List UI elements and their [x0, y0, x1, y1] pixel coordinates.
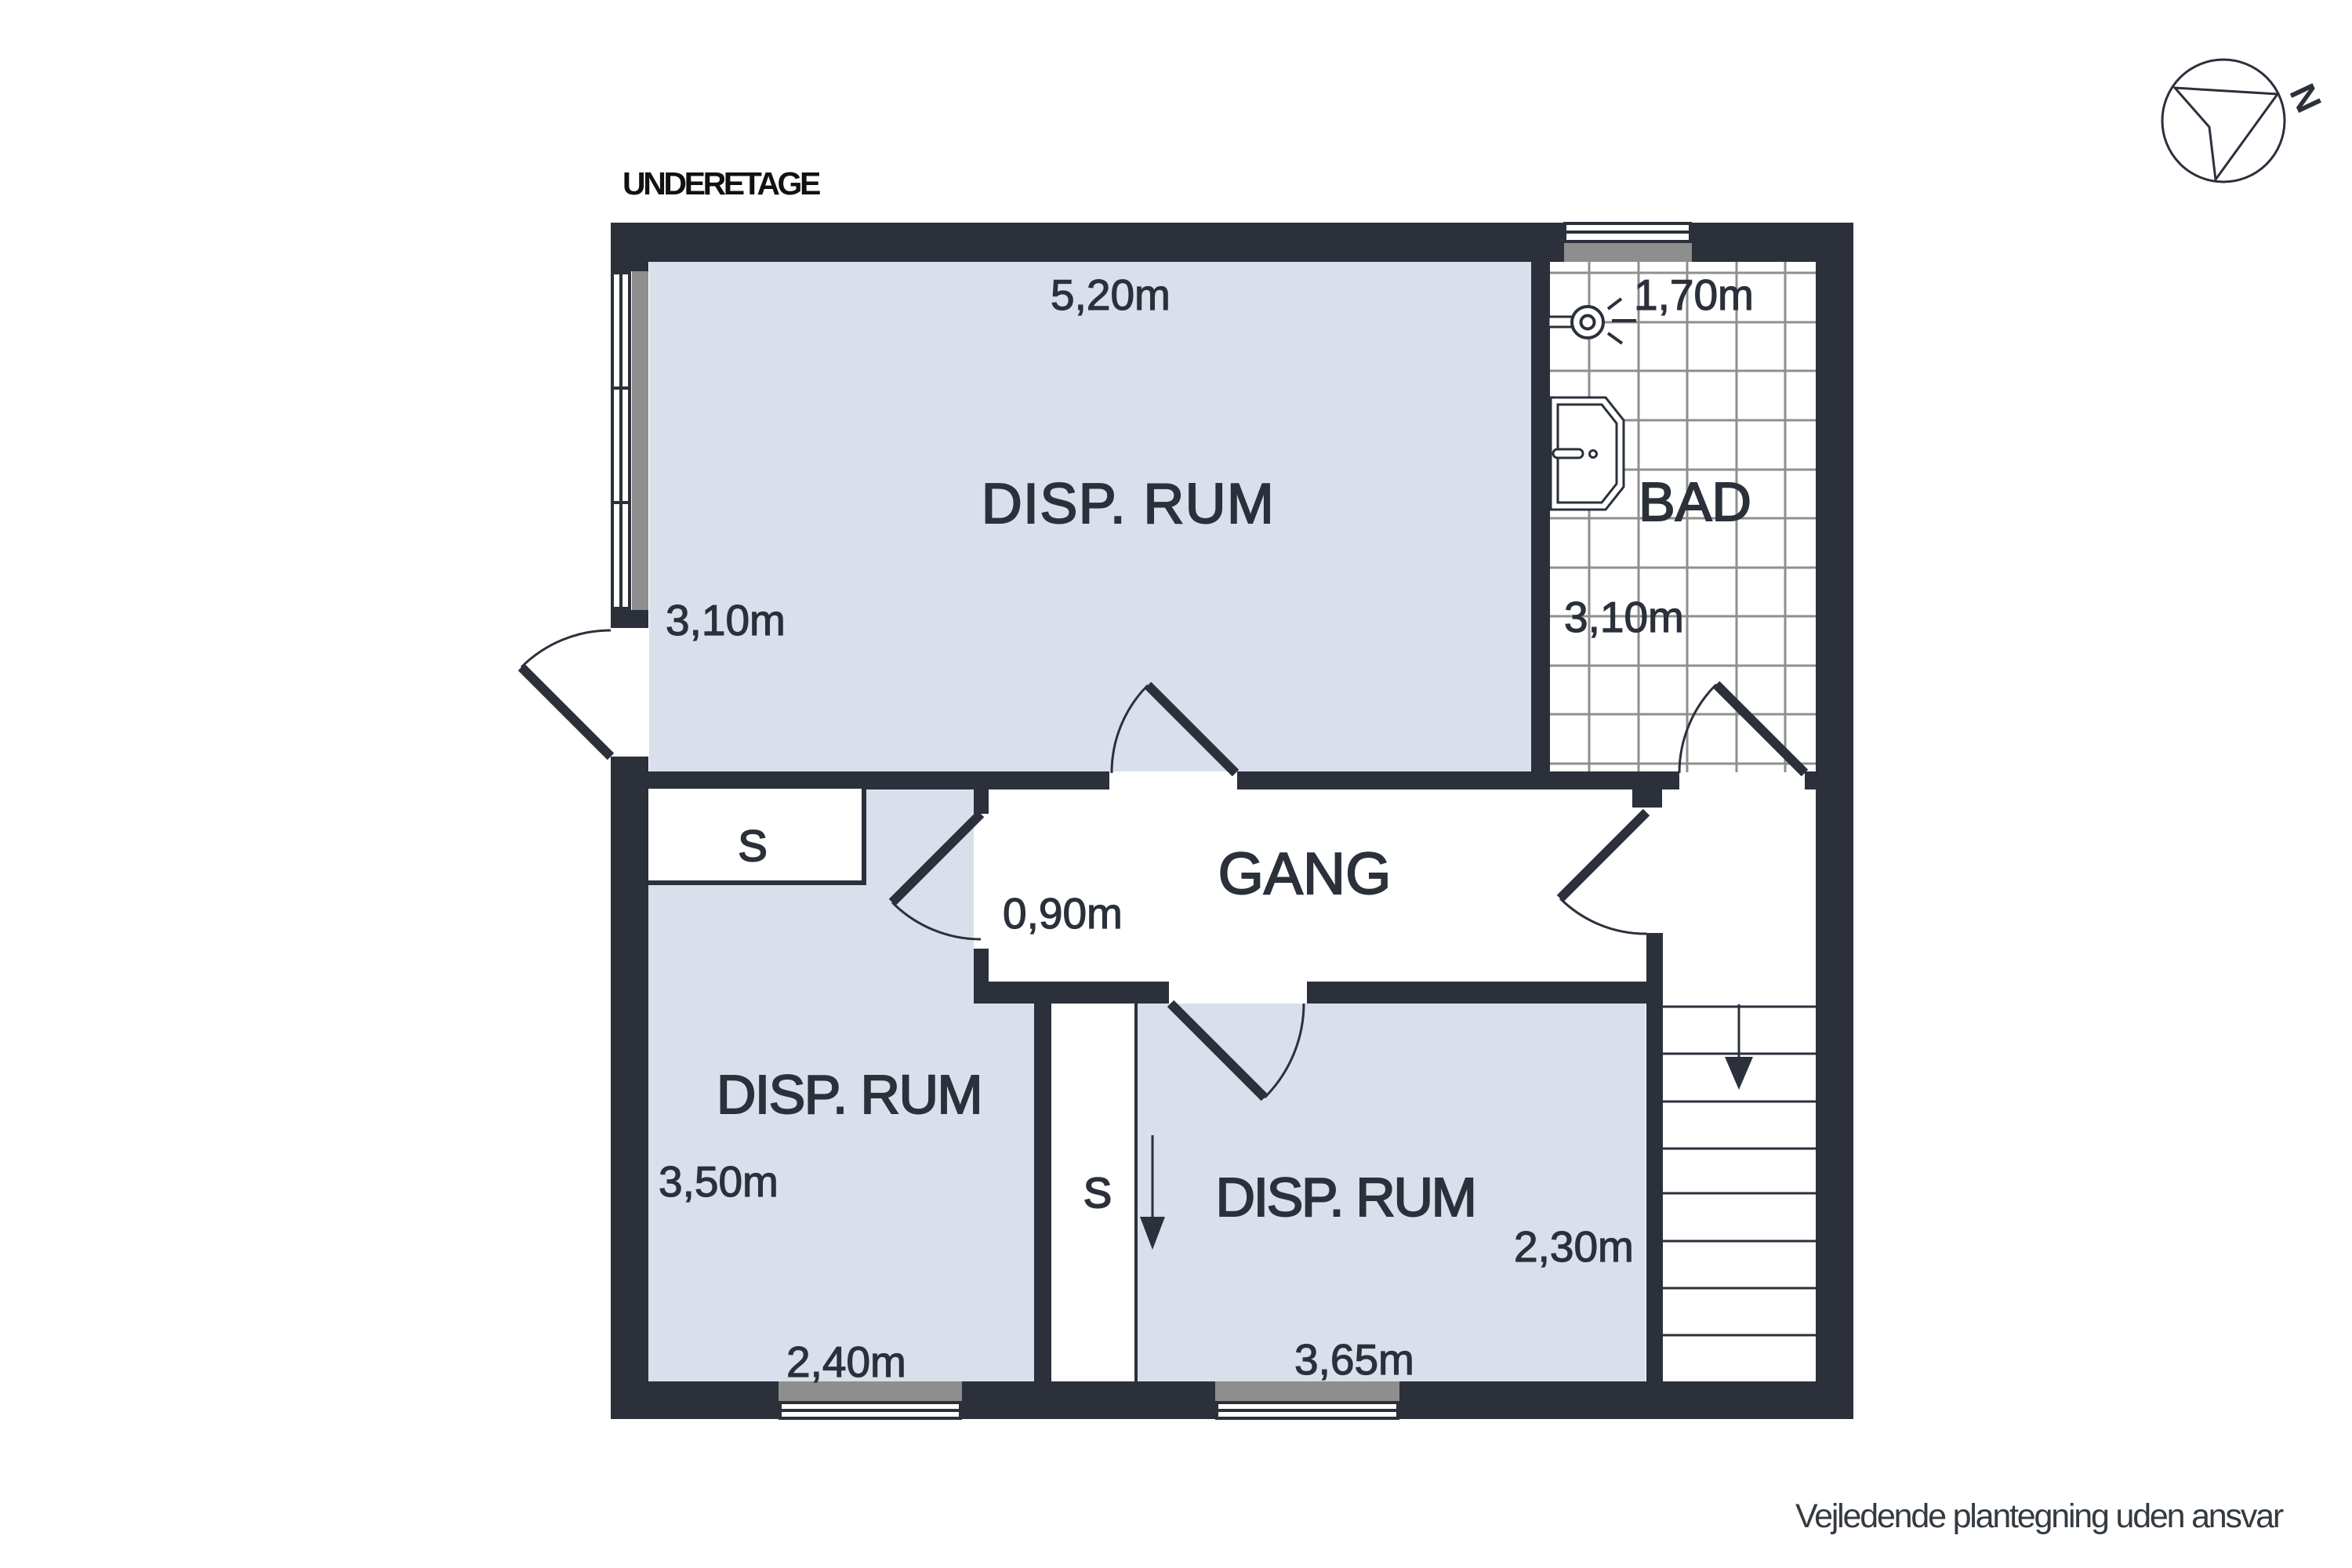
svg-text:DISP. RUM: DISP. RUM [1215, 1167, 1475, 1228]
svg-text:1,70m: 1,70m [1634, 270, 1754, 319]
svg-text:S: S [738, 821, 767, 870]
svg-text:2,30m: 2,30m [1514, 1222, 1634, 1271]
svg-text:BAD: BAD [1639, 471, 1751, 532]
svg-text:5,20m: 5,20m [1051, 270, 1171, 319]
svg-text:UNDERETAGE: UNDERETAGE [622, 165, 820, 201]
svg-text:2,40m: 2,40m [786, 1338, 906, 1386]
svg-text:3,50m: 3,50m [659, 1157, 779, 1206]
svg-text:3,10m: 3,10m [666, 596, 786, 644]
svg-text:DISP. RUM: DISP. RUM [717, 1064, 982, 1125]
svg-text:3,65m: 3,65m [1294, 1335, 1414, 1384]
svg-text:DISP. RUM: DISP. RUM [982, 473, 1275, 535]
svg-text:S: S [1083, 1170, 1112, 1217]
svg-text:Vejledende plantegning uden an: Vejledende plantegning uden ansvar [1795, 1497, 2284, 1535]
svg-text:3,10m: 3,10m [1564, 593, 1684, 641]
svg-text:0,90m: 0,90m [1003, 889, 1123, 938]
svg-text:GANG: GANG [1218, 840, 1392, 906]
